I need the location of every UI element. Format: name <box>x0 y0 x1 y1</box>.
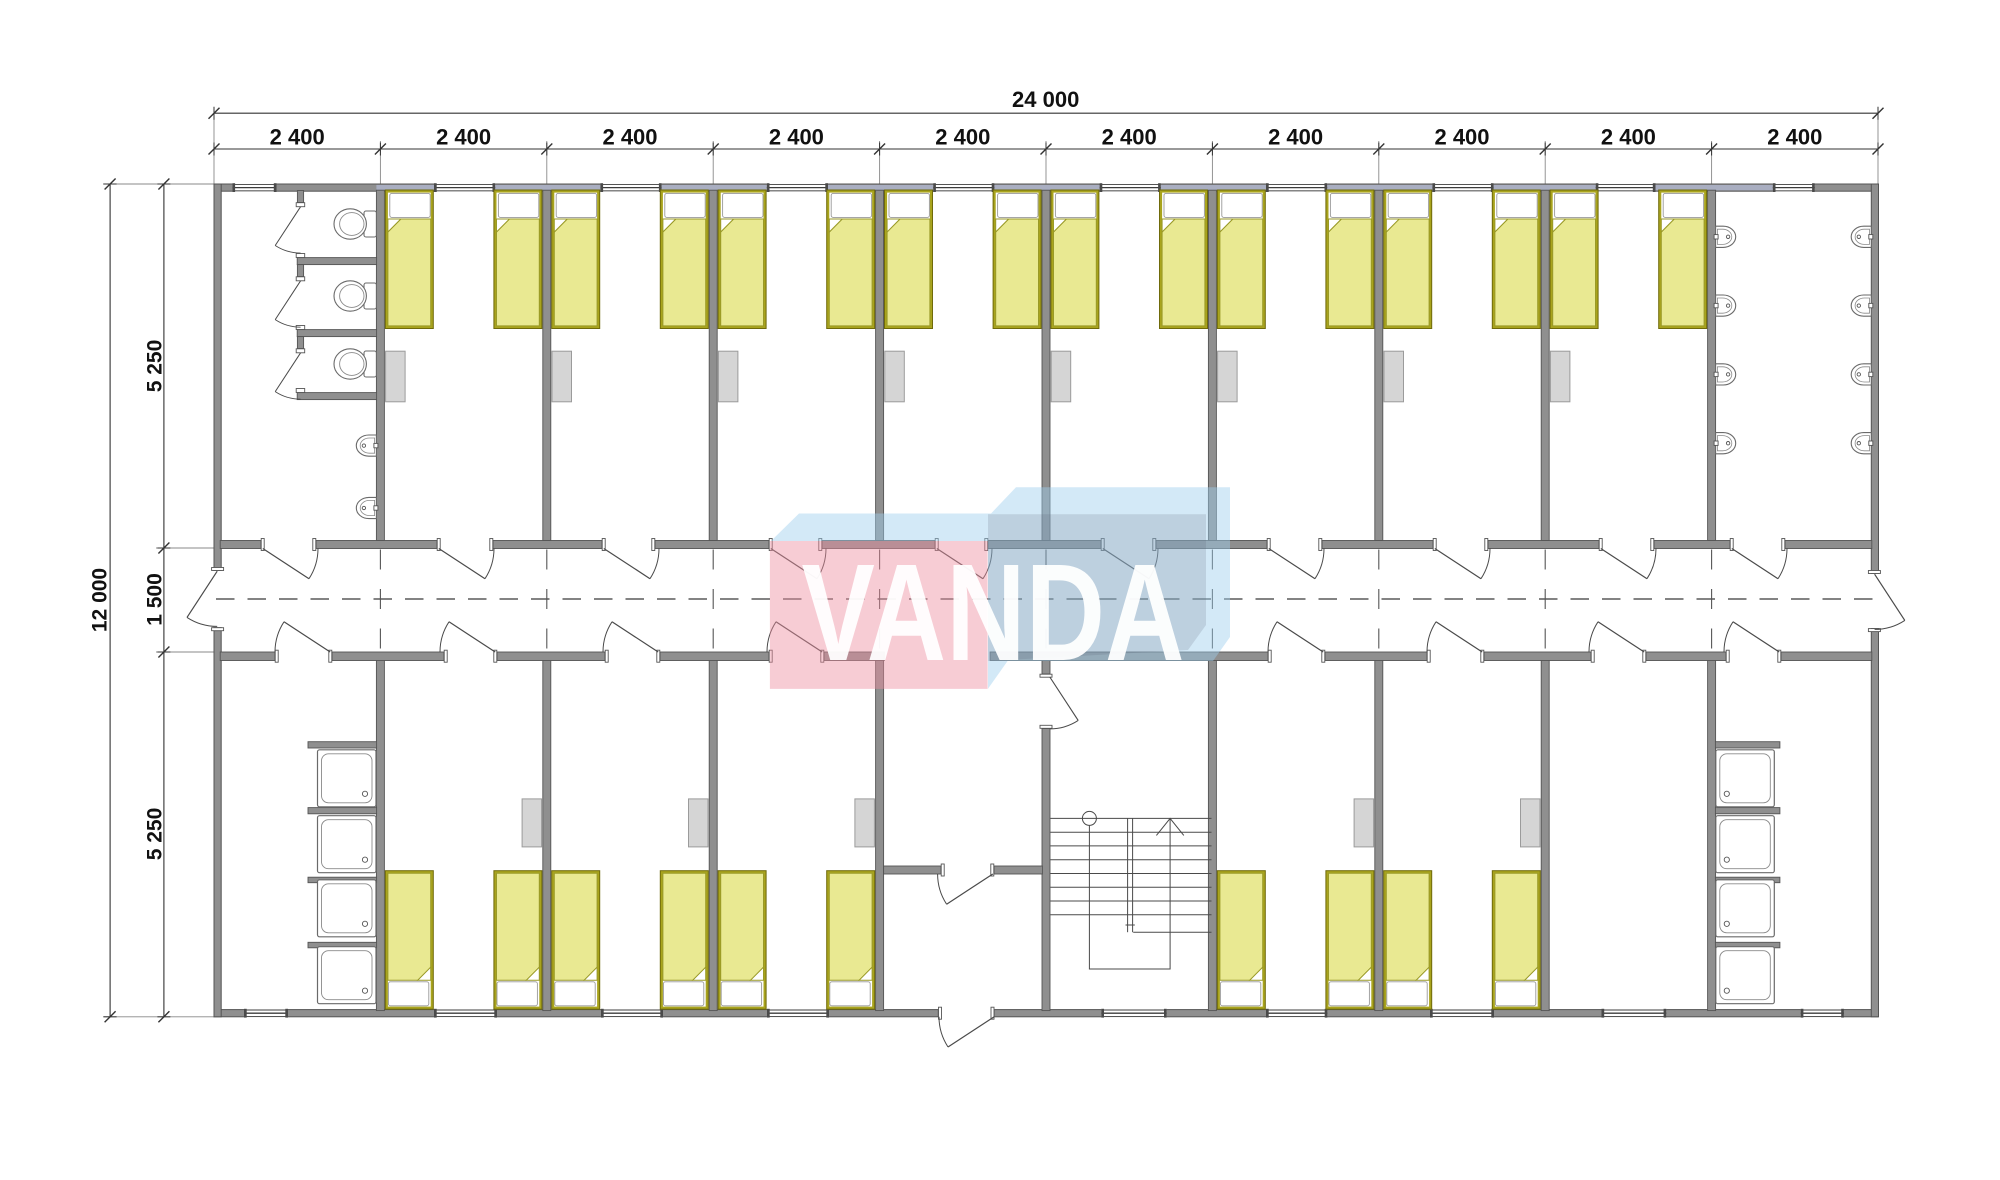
svg-text:1 500: 1 500 <box>144 573 167 626</box>
svg-text:24 000: 24 000 <box>1012 87 1079 112</box>
svg-text:2 400: 2 400 <box>1434 125 1489 150</box>
svg-text:5 250: 5 250 <box>144 808 167 861</box>
svg-text:2 400: 2 400 <box>1767 125 1822 150</box>
svg-text:VANDA: VANDA <box>802 536 1185 690</box>
svg-text:2 400: 2 400 <box>436 125 491 150</box>
svg-text:12 000: 12 000 <box>89 568 112 632</box>
svg-text:2 400: 2 400 <box>935 125 990 150</box>
svg-text:2 400: 2 400 <box>1102 125 1157 150</box>
svg-text:2 400: 2 400 <box>769 125 824 150</box>
svg-text:2 400: 2 400 <box>270 125 325 150</box>
svg-text:2 400: 2 400 <box>1268 125 1323 150</box>
svg-text:5 250: 5 250 <box>144 340 167 393</box>
svg-text:2 400: 2 400 <box>1601 125 1656 150</box>
svg-text:2 400: 2 400 <box>602 125 657 150</box>
